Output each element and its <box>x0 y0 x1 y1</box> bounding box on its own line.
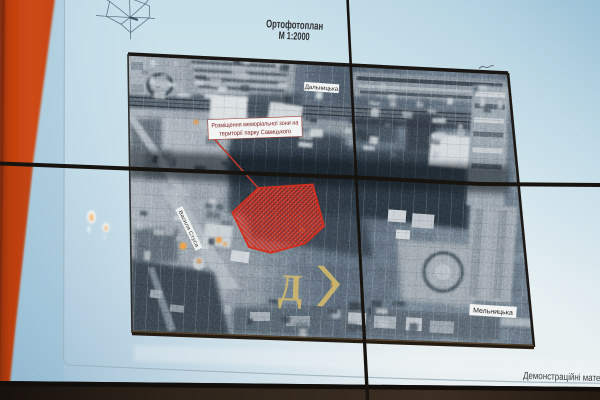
svg-text:М 1:2000: М 1:2000 <box>278 30 310 43</box>
svg-text:Д: Д <box>278 267 303 310</box>
